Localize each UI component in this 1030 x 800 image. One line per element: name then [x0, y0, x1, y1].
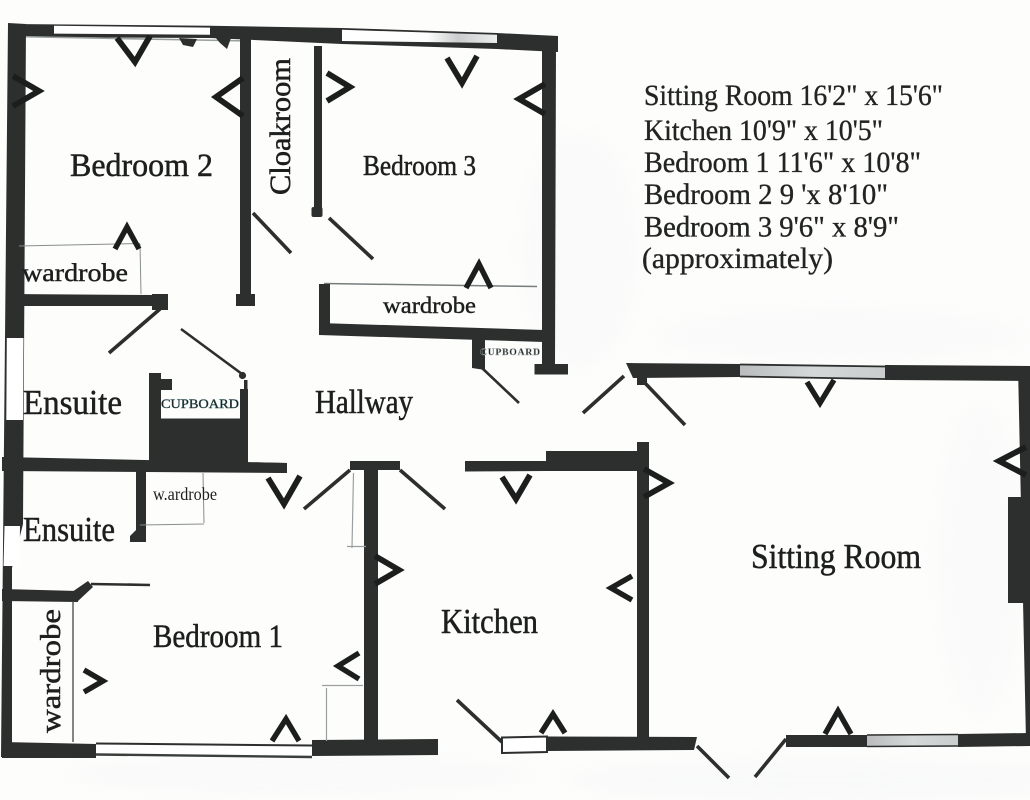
svg-text:Bedroom 3 9'6" x 8'9": Bedroom 3 9'6" x 8'9" — [644, 211, 899, 244]
svg-text:(approximately): (approximately) — [642, 242, 833, 275]
svg-text:Cloakroom: Cloakroom — [264, 58, 297, 195]
svg-text:Kitchen 10'9" x 10'5": Kitchen 10'9" x 10'5" — [644, 114, 883, 147]
svg-text:wardrobe: wardrobe — [22, 260, 128, 287]
svg-text:Bedroom 1: Bedroom 1 — [153, 619, 283, 655]
svg-text:Hallway: Hallway — [315, 384, 413, 421]
svg-text:Ensuite: Ensuite — [23, 510, 115, 549]
svg-text:w.ardrobe: w.ardrobe — [153, 484, 217, 504]
svg-text:CUPBOARD: CUPBOARD — [161, 396, 239, 411]
svg-text:Sitting Room 16'2" x 15'6": Sitting Room 16'2" x 15'6" — [644, 79, 943, 112]
svg-text:Bedroom 2: Bedroom 2 — [70, 148, 213, 184]
svg-text:Sitting Room: Sitting Room — [751, 537, 921, 576]
svg-text:Bedroom 1 11'6" x 10'8": Bedroom 1 11'6" x 10'8" — [644, 146, 921, 179]
svg-text:Bedroom 2 9 'x 8'10": Bedroom 2 9 'x 8'10" — [644, 178, 888, 211]
svg-text:wardrobe: wardrobe — [35, 609, 67, 733]
svg-text:Ensuite: Ensuite — [23, 383, 122, 422]
svg-text:wardrobe: wardrobe — [383, 293, 476, 318]
svg-text:Bedroom 3: Bedroom 3 — [363, 151, 476, 182]
svg-text:CUPBOARD: CUPBOARD — [480, 348, 540, 358]
svg-text:Kitchen: Kitchen — [441, 602, 538, 641]
